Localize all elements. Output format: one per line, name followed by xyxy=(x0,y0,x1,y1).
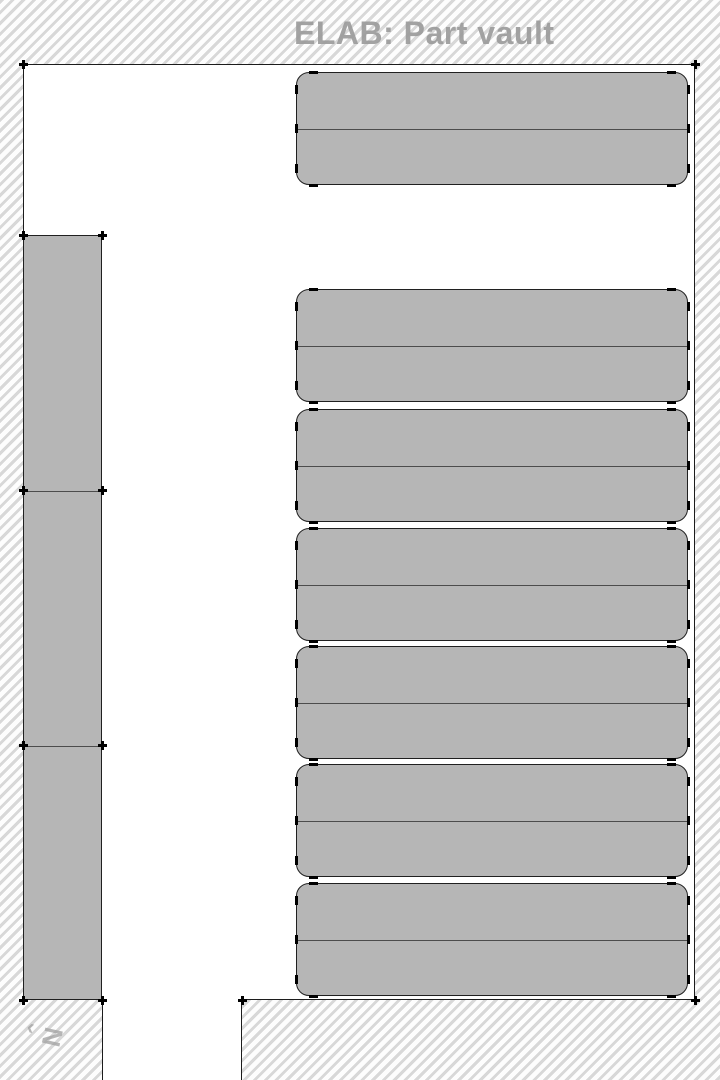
doorway-corridor xyxy=(102,998,242,1080)
shelf-divider xyxy=(297,703,687,704)
corner-tick xyxy=(309,995,318,998)
corner-tick xyxy=(667,184,676,187)
shelf-divider xyxy=(297,346,687,347)
floorplan-canvas: ELAB: Part vault ‹ N xyxy=(0,0,720,1080)
corner-tick xyxy=(667,401,676,404)
corner-tick xyxy=(309,527,318,530)
corner-tick xyxy=(309,184,318,187)
corner-tick xyxy=(694,60,697,69)
shelf-divider xyxy=(24,491,101,492)
corner-tick xyxy=(295,856,298,865)
corner-tick xyxy=(687,777,690,786)
corner-tick xyxy=(295,501,298,510)
floor-rack-5[interactable] xyxy=(296,646,688,759)
corner-tick xyxy=(295,659,298,668)
corner-tick xyxy=(687,124,690,133)
shelf-divider xyxy=(297,129,687,130)
corner-tick xyxy=(667,640,676,643)
corner-tick xyxy=(667,995,676,998)
corner-tick xyxy=(295,541,298,550)
shelf-divider xyxy=(297,466,687,467)
shelf-divider xyxy=(297,585,687,586)
corner-tick xyxy=(687,816,690,825)
floor-rack-4[interactable] xyxy=(296,528,688,641)
corner-tick xyxy=(667,645,676,648)
north-arrow-chevron: ‹ xyxy=(25,1015,37,1038)
corner-tick xyxy=(241,996,244,1005)
corner-tick xyxy=(295,698,298,707)
corner-tick xyxy=(667,527,676,530)
corner-tick xyxy=(687,381,690,390)
corner-tick xyxy=(687,975,690,984)
corner-tick xyxy=(309,882,318,885)
corner-tick xyxy=(295,422,298,431)
shelf-divider xyxy=(24,746,101,747)
corner-tick xyxy=(22,996,25,1005)
corner-tick xyxy=(309,640,318,643)
corner-tick xyxy=(295,85,298,94)
floor-rack-1[interactable] xyxy=(296,72,688,185)
corner-tick xyxy=(667,758,676,761)
corner-tick xyxy=(687,422,690,431)
corner-tick xyxy=(295,620,298,629)
corner-tick xyxy=(687,659,690,668)
shelf-divider xyxy=(297,940,687,941)
floor-rack-2[interactable] xyxy=(296,289,688,402)
corner-tick xyxy=(309,758,318,761)
corner-tick xyxy=(295,935,298,944)
corner-tick xyxy=(309,408,318,411)
corner-tick xyxy=(101,486,104,495)
corner-tick xyxy=(22,60,25,69)
shelf-divider xyxy=(297,821,687,822)
corner-tick xyxy=(667,876,676,879)
corner-tick xyxy=(667,408,676,411)
corner-tick xyxy=(101,231,104,240)
corner-tick xyxy=(687,541,690,550)
corner-tick xyxy=(309,876,318,879)
corner-tick xyxy=(22,741,25,750)
corner-tick xyxy=(687,856,690,865)
corner-tick xyxy=(309,71,318,74)
north-arrow-label: N xyxy=(38,1025,68,1049)
corner-tick xyxy=(687,935,690,944)
corner-tick xyxy=(309,521,318,524)
corner-tick xyxy=(295,580,298,589)
corner-tick xyxy=(687,85,690,94)
corner-tick xyxy=(295,124,298,133)
corner-tick xyxy=(694,996,697,1005)
corner-tick xyxy=(667,521,676,524)
floor-rack-7[interactable] xyxy=(296,883,688,996)
corner-tick xyxy=(22,231,25,240)
corner-tick xyxy=(667,288,676,291)
corner-tick xyxy=(687,501,690,510)
corner-tick xyxy=(309,763,318,766)
corner-tick xyxy=(687,164,690,173)
corner-tick xyxy=(687,461,690,470)
floor-rack-6[interactable] xyxy=(296,764,688,877)
corner-tick xyxy=(295,302,298,311)
corner-tick xyxy=(667,882,676,885)
corner-tick xyxy=(667,763,676,766)
corner-tick xyxy=(309,401,318,404)
corner-tick xyxy=(101,996,104,1005)
corner-tick xyxy=(295,816,298,825)
corner-tick xyxy=(687,580,690,589)
corner-tick xyxy=(687,738,690,747)
corner-tick xyxy=(687,341,690,350)
corner-tick xyxy=(295,738,298,747)
corner-tick xyxy=(667,71,676,74)
north-arrow-icon: ‹ N xyxy=(24,1012,80,1064)
page-title: ELAB: Part vault xyxy=(294,15,554,52)
corner-tick xyxy=(687,620,690,629)
corner-tick xyxy=(309,645,318,648)
corner-tick xyxy=(295,777,298,786)
corner-tick xyxy=(295,164,298,173)
corner-tick xyxy=(22,486,25,495)
corner-tick xyxy=(295,381,298,390)
corner-tick xyxy=(101,741,104,750)
corner-tick xyxy=(687,698,690,707)
floor-rack-3[interactable] xyxy=(296,409,688,522)
wall-rack-column[interactable] xyxy=(23,235,102,1000)
corner-tick xyxy=(295,975,298,984)
corner-tick xyxy=(309,288,318,291)
corner-tick xyxy=(295,341,298,350)
corner-tick xyxy=(295,896,298,905)
corner-tick xyxy=(295,461,298,470)
corner-tick xyxy=(687,896,690,905)
corner-tick xyxy=(687,302,690,311)
